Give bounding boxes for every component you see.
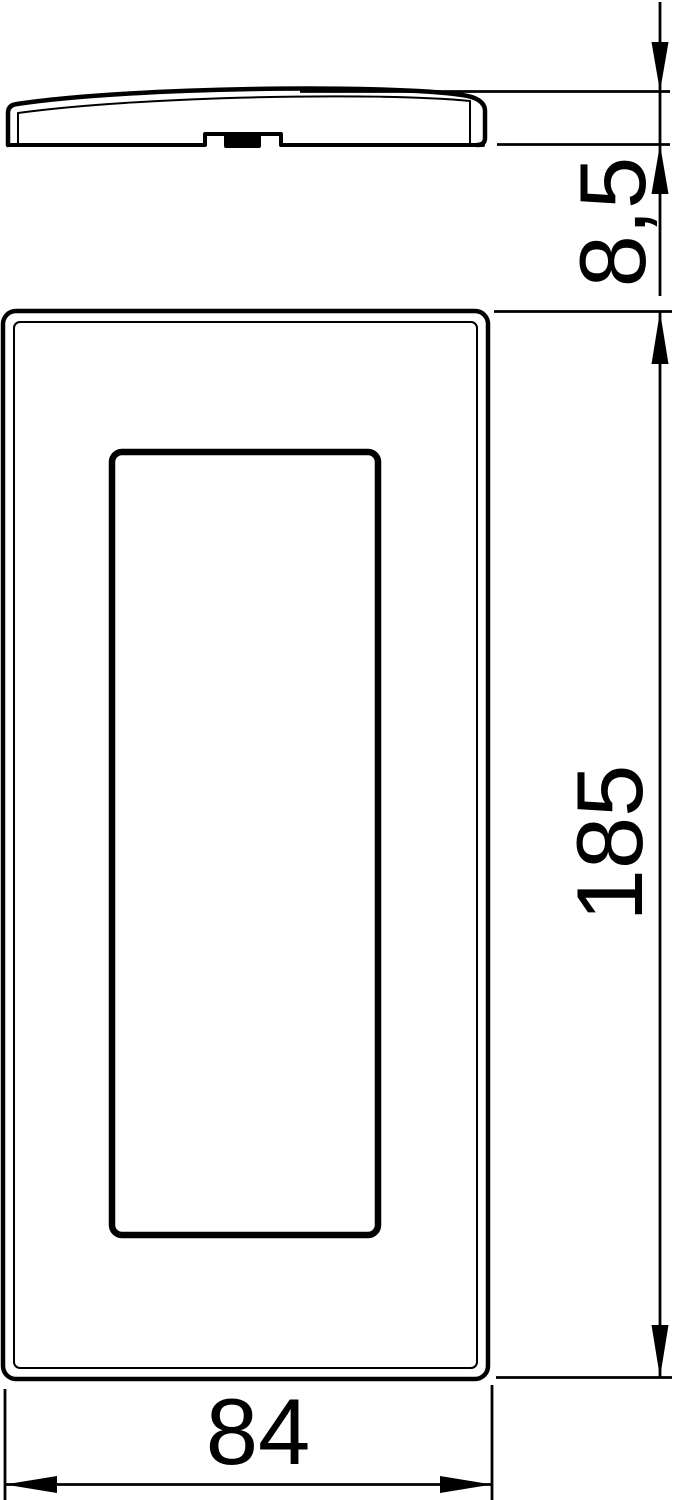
- front-view-inner-edge: [14, 322, 477, 1368]
- arrow-width-right: [440, 1476, 492, 1493]
- side-view-inner-arc: [18, 96, 470, 113]
- side-view-clip-tab: [224, 133, 261, 148]
- side-profile-view: [8, 89, 485, 148]
- arrow-profile-top: [652, 42, 669, 92]
- dimension-label-front-width: 84: [206, 1385, 311, 1479]
- dimension-label-front-height: 185: [563, 765, 657, 922]
- arrow-front-bottom: [652, 1325, 669, 1378]
- arrow-front-top: [652, 312, 669, 365]
- technical-drawing-canvas: 8,5 185 84: [0, 0, 677, 1500]
- front-view: [3, 311, 488, 1379]
- dimension-label-profile-height: 8,5: [566, 157, 660, 288]
- arrow-width-left: [5, 1476, 57, 1493]
- front-view-outer-frame: [3, 311, 488, 1379]
- front-view-module-opening: [112, 452, 378, 1235]
